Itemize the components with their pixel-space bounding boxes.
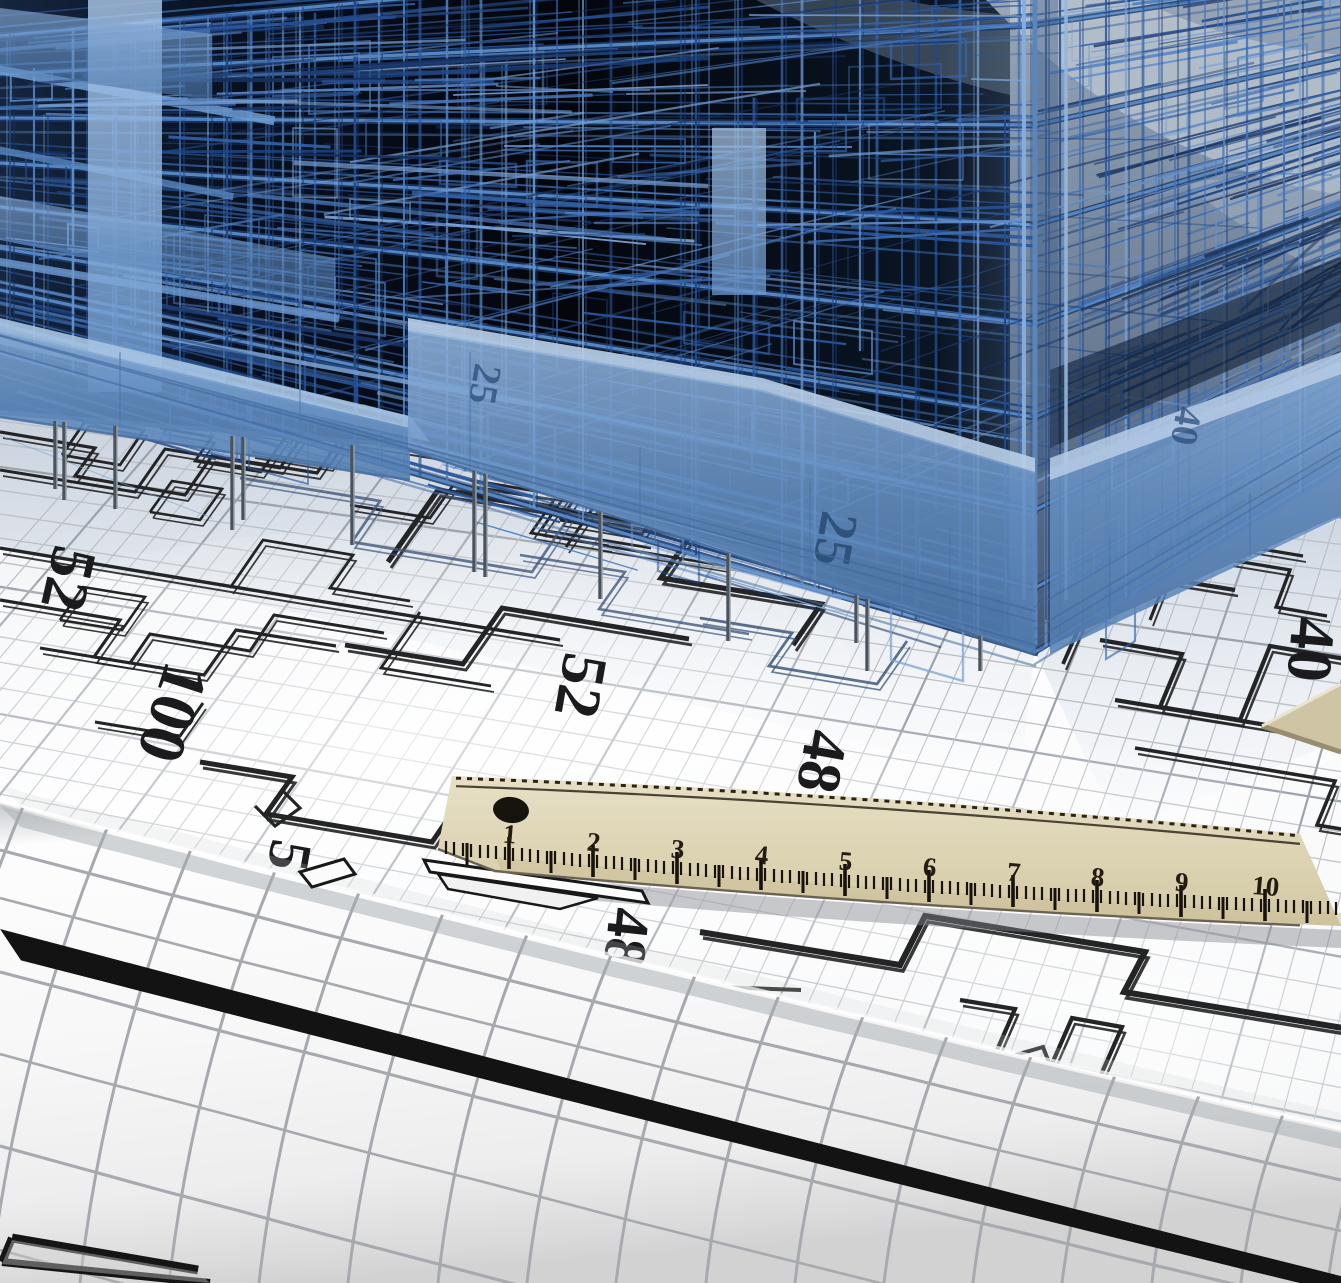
svg-text:40: 40	[1162, 404, 1210, 449]
svg-text:7: 7	[1006, 857, 1022, 888]
svg-text:6: 6	[922, 852, 938, 883]
svg-text:25: 25	[460, 361, 511, 408]
svg-text:25: 25	[801, 507, 869, 571]
svg-text:40: 40	[1273, 615, 1341, 685]
svg-text:1: 1	[502, 819, 518, 850]
svg-text:48: 48	[783, 725, 861, 798]
svg-text:2: 2	[586, 827, 602, 858]
svg-text:4: 4	[754, 840, 770, 871]
svg-text:3: 3	[670, 834, 686, 865]
svg-text:8: 8	[1090, 862, 1106, 893]
svg-text:10: 10	[1251, 870, 1281, 902]
svg-text:5: 5	[838, 846, 854, 877]
svg-text:52: 52	[541, 648, 622, 723]
svg-text:9: 9	[1174, 867, 1190, 898]
